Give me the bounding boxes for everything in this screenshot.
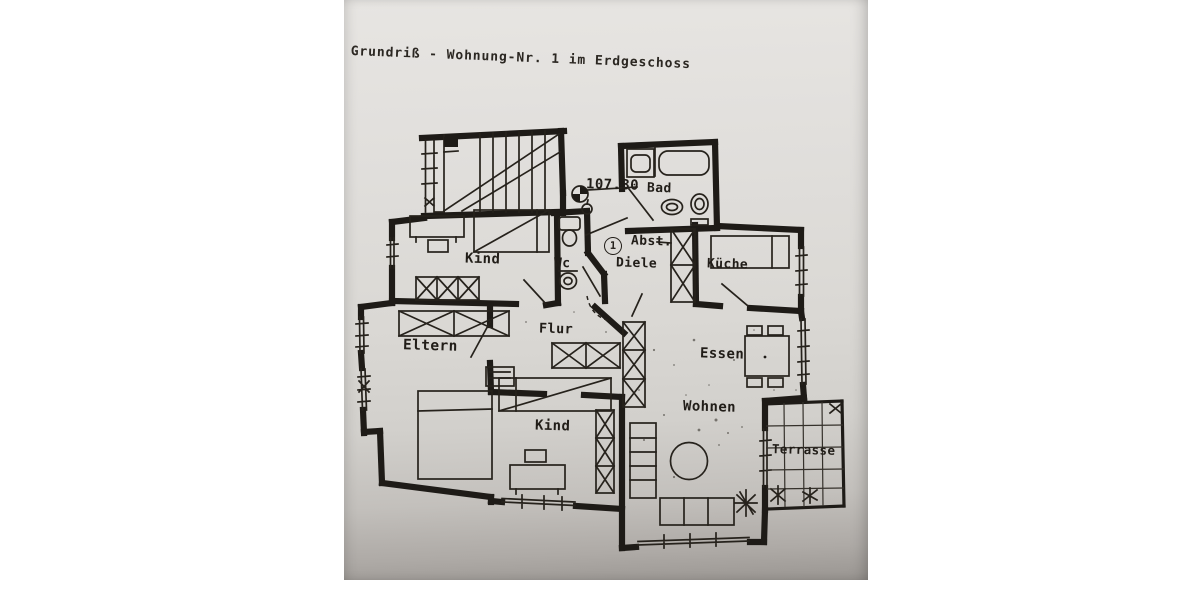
eltern-furniture bbox=[399, 280, 546, 479]
room-label-kueche: Küche bbox=[707, 256, 749, 272]
floorplan-drawing bbox=[344, 0, 868, 580]
bathtub bbox=[655, 147, 709, 176]
room-label-bad: Bad bbox=[647, 181, 672, 197]
room-label-wc: Wc bbox=[554, 256, 571, 271]
toilet bbox=[559, 217, 580, 246]
flur-closet bbox=[552, 343, 620, 368]
stool bbox=[428, 240, 448, 252]
abst-closet bbox=[671, 229, 695, 302]
shelf-radiator bbox=[416, 277, 479, 300]
diele-door-leaf bbox=[632, 294, 642, 316]
washing-machine bbox=[627, 149, 654, 177]
room-label-abstellraum: Abst. bbox=[631, 233, 673, 249]
entrance-door-leaf bbox=[586, 218, 627, 235]
wc-door-leaf bbox=[583, 267, 600, 296]
kueche-door-leaf bbox=[722, 284, 748, 306]
room-label-essen: Essen bbox=[700, 345, 745, 362]
room-label-terrasse: Terrasse bbox=[772, 441, 836, 458]
room-label-wohnen: Wohnen bbox=[683, 398, 736, 415]
elevation-label: 107.30 bbox=[586, 176, 639, 193]
room-label-diele: Diele bbox=[616, 255, 658, 271]
kind-top-door-leaf bbox=[524, 280, 546, 304]
bad-washbasin bbox=[662, 200, 683, 215]
washbasin bbox=[559, 271, 577, 289]
kind2-wardrobe bbox=[596, 410, 614, 493]
room-label-eltern: Eltern bbox=[403, 337, 458, 355]
scanned-paper: Grundriß - Wohnung-Nr. 1 im Erdgeschoss bbox=[344, 0, 868, 580]
parents-bed bbox=[418, 391, 492, 479]
plant bbox=[735, 490, 757, 516]
staircase bbox=[435, 131, 560, 212]
screenshot-root: { "page": { "title": "Grundriß - Wohnung… bbox=[0, 0, 1200, 600]
room-label-kind-top: Kind bbox=[465, 251, 501, 268]
kind2-desk bbox=[510, 465, 565, 489]
sofa bbox=[660, 498, 734, 525]
kind2-stool bbox=[525, 450, 546, 462]
round-table bbox=[671, 443, 708, 480]
room-label-flur: Flur bbox=[539, 321, 574, 338]
shelf bbox=[630, 423, 656, 498]
bad-toilet bbox=[691, 194, 708, 225]
room-label-kind-bottom: Kind bbox=[535, 418, 571, 435]
dining-table-with-chairs bbox=[745, 326, 789, 387]
